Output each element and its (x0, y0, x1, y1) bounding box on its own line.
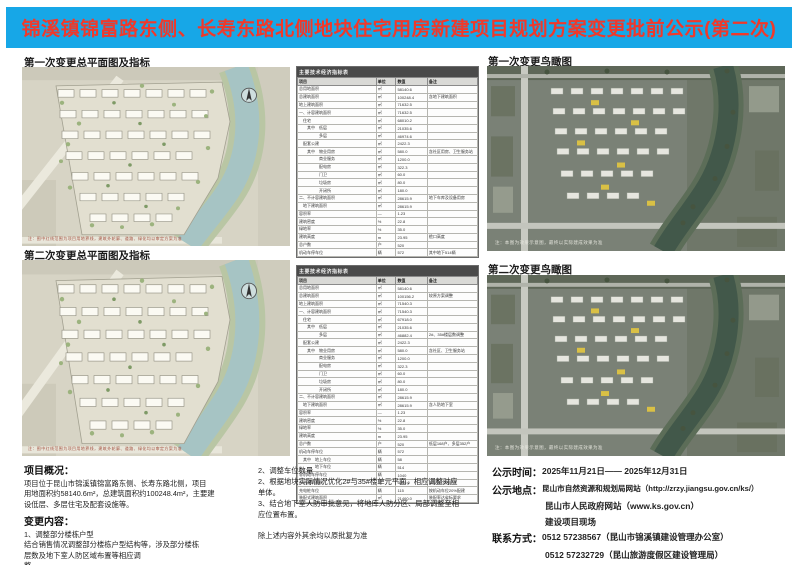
table-cell: % (376, 417, 396, 425)
table-cell (427, 163, 477, 171)
table-cell (427, 417, 477, 425)
table-cell: ㎡ (376, 355, 396, 363)
table-cell: 容积率 (298, 210, 377, 218)
table-cell: 住宅 (298, 316, 377, 324)
table-row: 总户数户520 (298, 241, 478, 249)
table-cell: 580.0 (396, 148, 427, 156)
table-cell: — (376, 409, 396, 417)
table-cell: 其中 低层 (298, 323, 377, 331)
table-cell (427, 117, 477, 125)
table-cell: 机动车停车位 (298, 249, 377, 257)
econ-indicator-table-1: 主要技术经济指标表 项目单位数值备注总用地面积㎡58140.6总建筑面积㎡100… (296, 66, 479, 258)
text-line: 1、调整部分楼栋户型 (24, 530, 254, 540)
table-row: 门卫㎡60.0 (298, 171, 478, 179)
table-row: 总用地面积㎡58140.6 (298, 285, 478, 293)
table-cell: 71540.3 (396, 300, 427, 308)
table-cell: 含社区、卫生服务站 (427, 347, 477, 355)
table-row: 总建筑面积㎡100248.4含地下建筑面积 (298, 93, 478, 101)
table-row: 其中 地上车位辆58 (298, 456, 478, 464)
table-row: 建筑高度m23.95檐口高度 (298, 233, 478, 241)
notice-contact-label: 联系方式： (492, 530, 542, 545)
change-notes-block: 2、调整车位数量2、根据地块实际情况优化2#与35#楼单元平面，相应调整对应单体… (258, 466, 484, 541)
table-cell: ㎡ (376, 124, 396, 132)
table-cell: ㎡ (376, 339, 396, 347)
notice-poster: 锦溪镇锦富路东侧、长寿东路北侧地块住宅用房新建项目规划方案变更批前公示(第二次)… (0, 0, 800, 565)
table-cell: 180.0 (396, 386, 427, 394)
table-cell: 一、计容建筑面积 (298, 109, 377, 117)
text-line: 单体。 (258, 488, 484, 499)
table-row: 多层㎡46882.42#、35#楼层数调整 (298, 331, 478, 339)
table-cell: 垃圾房 (298, 378, 377, 386)
site-plan-image-2: 注：图中红线范围为项目用地界线，建筑外轮廓、道路、绿化均以审定方案为准 (22, 260, 290, 456)
table-row: 一、计容建筑面积㎡71632.5 (298, 109, 478, 117)
table-cell (427, 179, 477, 187)
table-cell (427, 300, 477, 308)
table-cell: 总用地面积 (298, 285, 377, 293)
table-cell: 二、不计容建筑面积 (298, 393, 377, 401)
table-header-cell: 单位 (376, 277, 396, 285)
table-cell: 60.0 (396, 370, 427, 378)
notice-time-line: 公示时间： 2025年11月21日—— 2025年12月31日 (492, 464, 792, 479)
table-cell: 辆 (376, 249, 396, 257)
table-cell: 80.0 (396, 378, 427, 386)
change-notes-body: 2、调整车位数量2、根据地块实际情况优化2#与35#楼单元平面，相应调整对应单体… (258, 466, 484, 521)
table-cell: 总户数 (298, 241, 377, 249)
table-header-cell: 项目 (298, 277, 377, 285)
site-plan-graphic (22, 67, 290, 246)
table-row: 配电房㎡322.3 (298, 163, 478, 171)
table-cell: ㎡ (376, 401, 396, 409)
table-cell: 580.0 (396, 347, 427, 355)
table-row: 机动车停车位辆572 (298, 448, 478, 456)
notice-place-value-2: 昆山市人民政府网站（www.ks.gov.cn） (545, 499, 699, 512)
table-cell: 门卫 (298, 171, 377, 179)
table-cell: 较原方案调整 (427, 292, 477, 300)
table-row: 其中 物业用房㎡580.0含社区用房、卫生服务站 (298, 148, 478, 156)
table-row: 建筑密度%22.8 (298, 417, 478, 425)
table-cell (427, 393, 477, 401)
table-row: 其中 低层㎡21035.6 (298, 124, 478, 132)
table-cell (427, 432, 477, 440)
table-cell (427, 362, 477, 370)
table-row: 地下建筑面积㎡28615.9含人防地下室 (298, 401, 478, 409)
table-row: 配套公建㎡2422.3 (298, 140, 478, 148)
table-cell (427, 448, 477, 456)
table-cell: ㎡ (376, 156, 396, 164)
table-cell (427, 370, 477, 378)
table-cell: ㎡ (376, 93, 396, 101)
table-row: 容积率—1.23 (298, 409, 478, 417)
table-cell: 户 (376, 440, 396, 448)
table-row: 容积率—1.23 (298, 210, 478, 218)
indicator-table: 项目单位数值备注总用地面积㎡58140.6总建筑面积㎡100248.4含地下建筑… (297, 77, 478, 257)
table-cell: 68010.2 (396, 117, 427, 125)
notice-place-value: 昆山市自然资源和规划局网站（http://zrzy.jiangsu.gov.cn… (542, 482, 759, 497)
table-cell: 100248.4 (396, 93, 427, 101)
table-cell: 辆 (376, 448, 396, 456)
table-row: 建筑密度%22.8 (298, 218, 478, 226)
table-cell: ㎡ (376, 393, 396, 401)
table-cell: 2422.3 (396, 140, 427, 148)
table-cell (427, 339, 477, 347)
table-row: 多层㎡46974.6 (298, 132, 478, 140)
table-cell: 100156.2 (396, 292, 427, 300)
table-cell: ㎡ (376, 316, 396, 324)
table-cell: 地下建筑面积 (298, 401, 377, 409)
notice-place-line-3: 建设项目现场 (492, 515, 792, 528)
table-cell: 机动车停车位 (298, 448, 377, 456)
table-cell: 其中 物业用房 (298, 347, 377, 355)
table-cell: ㎡ (376, 323, 396, 331)
table-cell: 配电房 (298, 163, 377, 171)
text-line: 整。 (24, 561, 254, 565)
table-cell: 80.0 (396, 179, 427, 187)
text-line: 2、根据地块实际情况优化2#与35#楼单元平面，相应调整对应 (258, 477, 484, 488)
table-row: 总建筑面积㎡100156.2较原方案调整 (298, 292, 478, 300)
table-row: 绿地率%35.0 (298, 425, 478, 433)
table-row: 商业服务㎡1200.0 (298, 156, 478, 164)
table-cell: 配套公建 (298, 140, 377, 148)
project-overview-block: 项目概况： 项目位于昆山市锦溪镇锦富路东侧、长寿东路北侧，项目用地面积约5814… (24, 462, 254, 565)
aerial-caption-1: 注：本图为效果示意图，最终以实际建成效果为准 (495, 240, 603, 246)
table-cell (427, 323, 477, 331)
table-row: 其中 低层㎡21035.6 (298, 323, 478, 331)
table-cell: ㎡ (376, 179, 396, 187)
table-cell: 户 (376, 241, 396, 249)
table-row: 住宅㎡67918.0 (298, 316, 478, 324)
site-plan-image-1: 注：图中红线范围为项目用地界线，建筑外轮廓、道路、绿化均以审定方案为准 (22, 67, 290, 246)
table-cell: 28615.9 (396, 194, 427, 202)
table-cell: ㎡ (376, 171, 396, 179)
table-cell: 其中 低层 (298, 124, 377, 132)
table-cell (427, 456, 477, 464)
table-cell: m (376, 233, 396, 241)
table-cell (427, 316, 477, 324)
overview-heading: 项目概况： (24, 462, 254, 477)
table-cell: 23.95 (396, 233, 427, 241)
table-cell (427, 409, 477, 417)
changes-heading: 变更内容： (24, 513, 254, 528)
table-header-cell: 项目 (298, 78, 377, 86)
table-cell: 71632.5 (396, 101, 427, 109)
table-cell: ㎡ (376, 109, 396, 117)
table-cell: 28615.9 (396, 202, 427, 210)
table-row: 二、不计容建筑面积㎡28615.9地下车库及设备用房 (298, 194, 478, 202)
table-row: 总用地面积㎡58140.6 (298, 86, 478, 94)
table-cell: 总用地面积 (298, 86, 377, 94)
table-row: 其中 物业用房㎡580.0含社区、卫生服务站 (298, 347, 478, 355)
table-cell: 322.3 (396, 362, 427, 370)
table-row: 二、不计容建筑面积㎡28615.9 (298, 393, 478, 401)
table-row: 建筑高度m23.95 (298, 432, 478, 440)
table-cell: 46882.4 (396, 331, 427, 339)
table-cell: m (376, 432, 396, 440)
table-cell: 地上建筑面积 (298, 101, 377, 109)
table-cell (427, 140, 477, 148)
table-cell: 商业服务 (298, 355, 377, 363)
table-cell: 配套公建 (298, 339, 377, 347)
table-cell: 商业服务 (298, 156, 377, 164)
table-cell: 58140.6 (396, 285, 427, 293)
table-row: 地上建筑面积㎡71632.5 (298, 101, 478, 109)
table-cell: ㎡ (376, 378, 396, 386)
table-cell: 建筑高度 (298, 233, 377, 241)
table-cell: ㎡ (376, 132, 396, 140)
table-cell: 35.0 (396, 226, 427, 234)
table-cell (427, 226, 477, 234)
text-line: 设低层、多层住宅及配套设施等。 (24, 500, 254, 510)
table-row: 地下建筑面积㎡28615.9 (298, 202, 478, 210)
notice-contact-value-2: 0512 57232729（昆山旅游度假区建设管理局） (545, 548, 723, 561)
table-cell (427, 101, 477, 109)
table-cell: 其中地下514辆 (427, 249, 477, 257)
table-cell (427, 218, 477, 226)
table-cell: 辆 (376, 456, 396, 464)
notice-contact-line-2: 0512 57232729（昆山旅游度假区建设管理局） (492, 548, 792, 561)
aerial-caption-2: 注：本图为效果示意图，最终以实际建成效果为准 (495, 445, 603, 451)
table-cell: 多层 (298, 132, 377, 140)
table-cell: ㎡ (376, 308, 396, 316)
table-header-cell: 备注 (427, 277, 477, 285)
table-header-cell: 数值 (396, 277, 427, 285)
table-cell: 22.8 (396, 417, 427, 425)
table-cell (427, 210, 477, 218)
table-cell: 开闭所 (298, 386, 377, 394)
table-cell: ㎡ (376, 292, 396, 300)
text-line: 结合销售情况调整部分楼栋户型结构等，涉及部分楼栋 (24, 540, 254, 550)
table-title: 主要技术经济指标表 (297, 67, 478, 77)
table-cell: 46974.6 (396, 132, 427, 140)
table-row: 门卫㎡60.0 (298, 370, 478, 378)
table-cell: ㎡ (376, 362, 396, 370)
table-cell: 建筑密度 (298, 417, 377, 425)
table-cell (427, 378, 477, 386)
table-cell: 67918.0 (396, 316, 427, 324)
table-cell: ㎡ (376, 148, 396, 156)
table-cell: 572 (396, 448, 427, 456)
table-cell: % (376, 226, 396, 234)
change-notes-footer: 除上述内容外其余均以原批复为准 (258, 531, 484, 541)
table-row: 住宅㎡68010.2 (298, 117, 478, 125)
title-banner: 锦溪镇锦富路东侧、长寿东路北侧地块住宅用房新建项目规划方案变更批前公示(第二次) (6, 7, 792, 48)
table-header-cell: 数值 (396, 78, 427, 86)
table-cell: 檐口高度 (427, 233, 477, 241)
text-line: 3、结合地下室人防审批意见，将地库人防分区、局部调整至相 (258, 499, 484, 510)
table-cell: 门卫 (298, 370, 377, 378)
table-cell: 垃圾房 (298, 179, 377, 187)
page-title: 锦溪镇锦富路东侧、长寿东路北侧地块住宅用房新建项目规划方案变更批前公示(第二次) (22, 14, 777, 41)
table-cell: 2422.3 (396, 339, 427, 347)
table-cell (427, 132, 477, 140)
table-cell: 一、计容建筑面积 (298, 308, 377, 316)
table-cell: 含社区用房、卫生服务站 (427, 148, 477, 156)
table-cell: 容积率 (298, 409, 377, 417)
table-cell: 二、不计容建筑面积 (298, 194, 377, 202)
table-cell: 1.23 (396, 409, 427, 417)
table-cell: ㎡ (376, 386, 396, 394)
table-cell: 总建筑面积 (298, 292, 377, 300)
publicity-notice-block: 公示时间： 2025年11月21日—— 2025年12月31日 公示地点： 昆山… (492, 464, 792, 565)
table-header-cell: 备注 (427, 78, 477, 86)
table-cell: 建筑密度 (298, 218, 377, 226)
table-row: 垃圾房㎡80.0 (298, 378, 478, 386)
table-cell: 1.23 (396, 210, 427, 218)
aerial-view-image-1: 注：本图为效果示意图，最终以实际建成效果为准 (487, 66, 785, 251)
table-cell (427, 187, 477, 195)
table-cell: 2#、35#楼层数调整 (427, 331, 477, 339)
table-cell (427, 425, 477, 433)
table-cell: ㎡ (376, 101, 396, 109)
table-cell (427, 124, 477, 132)
table-cell: ㎡ (376, 194, 396, 202)
table-row: 总户数户520低层168户、多层352户 (298, 440, 478, 448)
table-cell: 520 (396, 241, 427, 249)
table-row: 商业服务㎡1200.0 (298, 355, 478, 363)
table-cell: ㎡ (376, 163, 396, 171)
table-cell: 开闭所 (298, 187, 377, 195)
table-cell: 572 (396, 249, 427, 257)
table-title: 主要技术经济指标表 (297, 266, 478, 276)
text-line: 层数及地下室人防区域布置等相应调 (24, 551, 254, 561)
table-cell: 23.95 (396, 432, 427, 440)
notice-place-label: 公示地点： (492, 482, 542, 497)
table-cell: 建筑高度 (298, 432, 377, 440)
table-cell: 其中 地上车位 (298, 456, 377, 464)
table-cell: 28615.9 (396, 401, 427, 409)
table-cell: ㎡ (376, 117, 396, 125)
notice-contact-line: 联系方式： 0512 57238567（昆山市锦溪镇建设管理办公室） (492, 530, 792, 545)
table-cell (427, 202, 477, 210)
table-row: 配套公建㎡2422.3 (298, 339, 478, 347)
table-row: 垃圾房㎡80.0 (298, 179, 478, 187)
notice-contact-value: 0512 57238567（昆山市锦溪镇建设管理办公室） (542, 530, 729, 545)
table-cell: 71632.5 (396, 109, 427, 117)
table-cell (427, 308, 477, 316)
table-row: 一、计容建筑面积㎡71540.3 (298, 308, 478, 316)
table-cell (427, 386, 477, 394)
notice-time-value: 2025年11月21日—— 2025年12月31日 (542, 464, 688, 479)
table-row: 配电房㎡322.3 (298, 362, 478, 370)
table-cell: — (376, 210, 396, 218)
table-cell: 322.3 (396, 163, 427, 171)
table-row: 地上建筑面积㎡71540.3 (298, 300, 478, 308)
table-row: 开闭所㎡180.0 (298, 187, 478, 195)
table-cell: 多层 (298, 331, 377, 339)
table-cell: 总户数 (298, 440, 377, 448)
notice-place-line: 公示地点： 昆山市自然资源和规划局网站（http://zrzy.jiangsu.… (492, 482, 792, 497)
table-cell: % (376, 425, 396, 433)
table-cell: 配电房 (298, 362, 377, 370)
table-body: 项目单位数值备注总用地面积㎡58140.6总建筑面积㎡100248.4含地下建筑… (297, 77, 478, 257)
table-cell: 1200.0 (396, 355, 427, 363)
table-cell: 住宅 (298, 117, 377, 125)
table-cell: ㎡ (376, 140, 396, 148)
table-cell: 地上建筑面积 (298, 300, 377, 308)
table-cell: % (376, 218, 396, 226)
site-plan-caption-1: 注：图中红线范围为项目用地界线，建筑外轮廓、道路、绿化均以审定方案为准 (28, 236, 182, 242)
notice-place-line-2: 昆山市人民政府网站（www.ks.gov.cn） (492, 499, 792, 512)
table-row: 机动车停车位辆572其中地下514辆 (298, 249, 478, 257)
changes-body: 1、调整部分楼栋户型结合销售情况调整部分楼栋户型结构等，涉及部分楼栋层数及地下室… (24, 530, 254, 565)
table-cell (427, 156, 477, 164)
table-cell: 28615.9 (396, 393, 427, 401)
text-line: 用地面积约58140.6m²，总建筑面积约100248.4m²，主要建 (24, 489, 254, 499)
table-cell: 22.8 (396, 218, 427, 226)
site-plan-graphic (22, 260, 290, 456)
aerial-view-image-2: 注：本图为效果示意图，最终以实际建成效果为准 (487, 275, 785, 456)
table-row: 开闭所㎡180.0 (298, 386, 478, 394)
aerial-view-graphic (487, 66, 785, 251)
table-cell: 21035.6 (396, 124, 427, 132)
table-cell: ㎡ (376, 285, 396, 293)
table-cell: 含地下建筑面积 (427, 93, 477, 101)
notice-time-label: 公示时间： (492, 464, 542, 479)
table-cell: ㎡ (376, 86, 396, 94)
table-cell: 60.0 (396, 171, 427, 179)
site-plan-caption-2: 注：图中红线范围为项目用地界线，建筑外轮廓、道路、绿化均以审定方案为准 (28, 446, 182, 452)
table-cell: 总建筑面积 (298, 93, 377, 101)
overview-body: 项目位于昆山市锦溪镇锦富路东侧、长寿东路北侧，项目用地面积约58140.6m²，… (24, 479, 254, 510)
table-cell: 58140.6 (396, 86, 427, 94)
table-cell (427, 355, 477, 363)
table-cell: 绿地率 (298, 226, 377, 234)
table-cell: 其中 物业用房 (298, 148, 377, 156)
table-cell: 绿地率 (298, 425, 377, 433)
aerial-view-graphic (487, 275, 785, 456)
table-cell (427, 109, 477, 117)
table-cell: 21035.6 (396, 323, 427, 331)
table-cell: ㎡ (376, 300, 396, 308)
table-cell: 1200.0 (396, 156, 427, 164)
table-cell (427, 86, 477, 94)
table-cell: 520 (396, 440, 427, 448)
table-cell: ㎡ (376, 187, 396, 195)
notice-place-value-3: 建设项目现场 (545, 515, 596, 528)
table-cell (427, 241, 477, 249)
text-line: 项目位于昆山市锦溪镇锦富路东侧、长寿东路北侧，项目 (24, 479, 254, 489)
table-cell: 58 (396, 456, 427, 464)
table-cell: 35.0 (396, 425, 427, 433)
table-cell: 180.0 (396, 187, 427, 195)
table-cell: ㎡ (376, 347, 396, 355)
table-cell: ㎡ (376, 370, 396, 378)
table-cell: ㎡ (376, 331, 396, 339)
table-cell (427, 171, 477, 179)
table-cell: 低层168户、多层352户 (427, 440, 477, 448)
table-cell: 地下车库及设备用房 (427, 194, 477, 202)
text-line: 2、调整车位数量 (258, 466, 484, 477)
table-cell: ㎡ (376, 202, 396, 210)
table-cell: 地下建筑面积 (298, 202, 377, 210)
table-cell: 71540.3 (396, 308, 427, 316)
table-header-cell: 单位 (376, 78, 396, 86)
text-line: 应位置布置。 (258, 510, 484, 521)
table-row: 绿地率%35.0 (298, 226, 478, 234)
table-cell: 含人防地下室 (427, 401, 477, 409)
table-cell (427, 285, 477, 293)
